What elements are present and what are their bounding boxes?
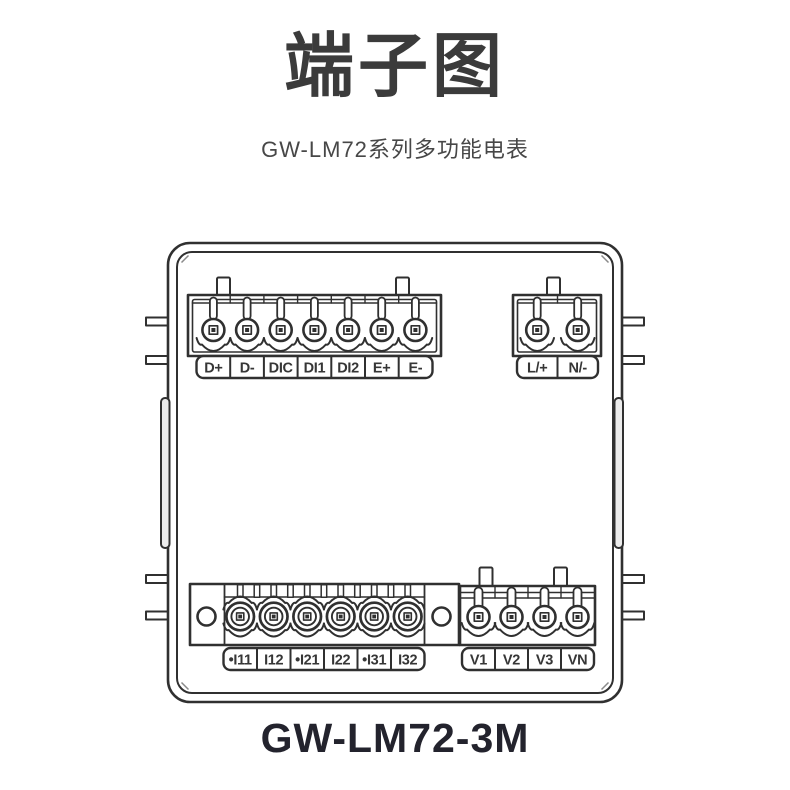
mounting-hole — [198, 608, 216, 626]
terminal-label: D- — [240, 361, 255, 377]
plug-latch-tab — [480, 568, 493, 587]
voltage-label-row: V1 V2 V3 VN — [462, 648, 594, 670]
terminal-label: VN — [568, 653, 588, 669]
plug-latch-tab — [547, 278, 560, 296]
current-label-row: •I11 I12 •I21 I22 •I31 I32 — [224, 648, 425, 670]
terminal-diagram-page: 端子图 GW-LM72系列多功能电表 — [0, 0, 790, 790]
terminal-label: V1 — [470, 653, 487, 669]
terminal-label: DI1 — [304, 361, 326, 377]
plug-latch-tab — [217, 278, 230, 296]
power-label-row: L/+ N/- — [517, 356, 598, 378]
terminal-label: I12 — [264, 653, 283, 669]
terminal-label: V2 — [503, 653, 520, 669]
terminal-label: •I11 — [229, 653, 252, 669]
model-caption: GW-LM72-3M — [0, 712, 790, 764]
mounting-hole — [433, 608, 451, 626]
plug-latch-tab — [396, 278, 409, 296]
terminal-label: I22 — [331, 653, 350, 669]
terminal-label: •I21 — [295, 653, 319, 669]
terminal-label: DI2 — [337, 361, 359, 377]
terminal-label: E- — [408, 361, 422, 377]
terminal-label: N/- — [568, 361, 587, 377]
comm-label-row: D+ D- DIC DI1 DI2 E+ E- — [197, 356, 433, 378]
plug-latch-tab — [554, 568, 567, 587]
terminal-label: E+ — [373, 361, 391, 377]
terminal-diagram-drawing: D+ D- DIC DI1 DI2 E+ E- — [0, 0, 790, 790]
terminal-label: D+ — [204, 361, 222, 377]
terminal-label: DIC — [269, 361, 294, 377]
terminal-label: I32 — [398, 653, 417, 669]
terminal-label: V3 — [536, 653, 553, 669]
terminal-label: L/+ — [527, 361, 547, 377]
terminal-label: •I31 — [362, 653, 386, 669]
current-terminal-block: •I11 I12 •I21 I22 •I31 I32 — [190, 584, 459, 670]
